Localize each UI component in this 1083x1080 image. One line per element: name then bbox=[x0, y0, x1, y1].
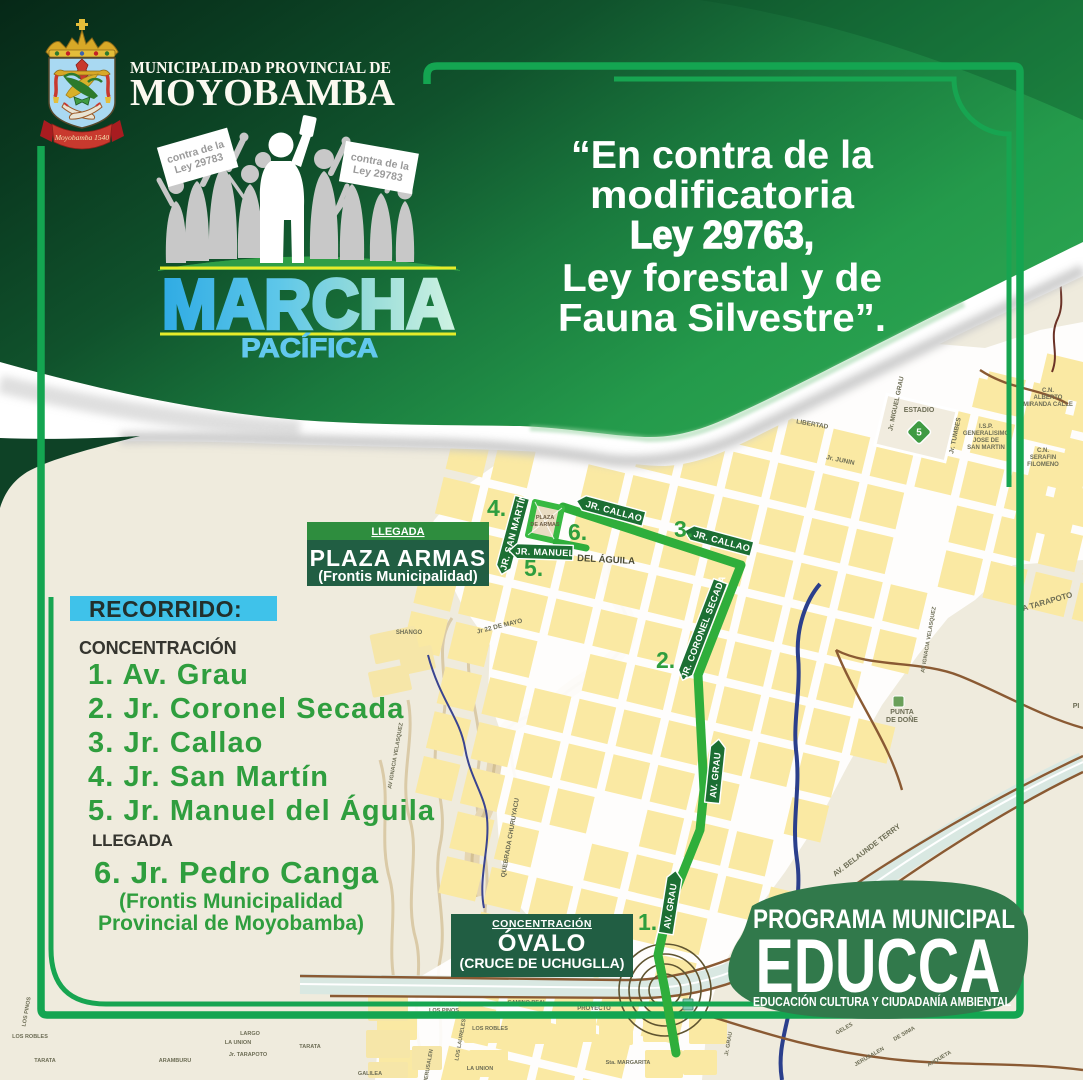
svg-text:SERAFIN: SERAFIN bbox=[1030, 455, 1056, 461]
svg-text:MIRANDA CALLE: MIRANDA CALLE bbox=[1023, 402, 1073, 408]
svg-text:LA UNION: LA UNION bbox=[225, 1040, 251, 1046]
svg-text:3. Jr. Callao: 3. Jr. Callao bbox=[88, 727, 264, 759]
svg-text:GENERALISIMO: GENERALISIMO bbox=[963, 431, 1010, 437]
svg-text:GALILEA: GALILEA bbox=[358, 1071, 382, 1077]
svg-text:4. Jr. San Martín: 4. Jr. San Martín bbox=[88, 761, 329, 793]
svg-text:Provincial de Moyobamba): Provincial de Moyobamba) bbox=[98, 912, 364, 935]
svg-text:DE DOÑE: DE DOÑE bbox=[886, 715, 918, 724]
svg-text:PLAZA: PLAZA bbox=[536, 515, 554, 521]
svg-text:TARATA: TARATA bbox=[299, 1044, 320, 1050]
svg-text:5. Jr. Manuel del Águila: 5. Jr. Manuel del Águila bbox=[88, 793, 435, 827]
svg-text:LLEGADA: LLEGADA bbox=[371, 526, 424, 538]
svg-text:ALBERTO: ALBERTO bbox=[1034, 395, 1063, 401]
svg-text:I.S.P.: I.S.P. bbox=[979, 424, 993, 430]
svg-text:ÓVALO: ÓVALO bbox=[498, 929, 587, 957]
svg-text:FILOMENO: FILOMENO bbox=[1027, 462, 1059, 468]
svg-text:LA UNION: LA UNION bbox=[467, 1066, 493, 1072]
svg-text:2.: 2. bbox=[656, 647, 675, 673]
svg-text:5: 5 bbox=[916, 428, 922, 439]
svg-text:(CRUCE DE UCHUGLLA): (CRUCE DE UCHUGLLA) bbox=[460, 955, 625, 971]
svg-text:SAN MARTIN: SAN MARTIN bbox=[967, 445, 1005, 451]
svg-text:MARCHA: MARCHA bbox=[162, 265, 454, 343]
svg-text:PROYECTO: PROYECTO bbox=[577, 1006, 611, 1012]
svg-text:DE ARMAS: DE ARMAS bbox=[530, 522, 559, 528]
svg-text:1.: 1. bbox=[638, 909, 657, 935]
svg-text:SHANGO: SHANGO bbox=[396, 630, 423, 636]
svg-text:PUNTA: PUNTA bbox=[890, 709, 914, 716]
svg-text:1. Av. Grau: 1. Av. Grau bbox=[88, 659, 249, 691]
svg-text:(Frontis Municipalidad: (Frontis Municipalidad bbox=[119, 890, 343, 913]
svg-text:“En contra de la: “En contra de la bbox=[571, 134, 873, 177]
svg-text:Jr. TARAPOTO: Jr. TARAPOTO bbox=[229, 1052, 268, 1058]
svg-text:CONCENTRACIÓN: CONCENTRACIÓN bbox=[492, 917, 592, 930]
svg-text:Ley 29763,: Ley 29763, bbox=[630, 214, 814, 257]
svg-text:5.: 5. bbox=[524, 555, 543, 581]
svg-text:C.N.: C.N. bbox=[1037, 448, 1049, 454]
svg-text:LOS ROBLES: LOS ROBLES bbox=[12, 1034, 48, 1040]
svg-text:3.: 3. bbox=[674, 516, 693, 542]
svg-text:ESTADIO: ESTADIO bbox=[904, 407, 935, 414]
svg-text:TARATA: TARATA bbox=[34, 1058, 55, 1064]
svg-text:PACÍFICA: PACÍFICA bbox=[241, 332, 378, 363]
svg-text:6.: 6. bbox=[568, 519, 587, 545]
svg-text:(Frontis Municipalidad): (Frontis Municipalidad) bbox=[318, 569, 478, 585]
svg-text:RECORRIDO:: RECORRIDO: bbox=[89, 596, 242, 622]
svg-text:EDUCACIÓN CULTURA Y CIUDADANÍA: EDUCACIÓN CULTURA Y CIUDADANÍA AMBIENTAL bbox=[753, 994, 1011, 1009]
svg-text:4.: 4. bbox=[487, 495, 506, 521]
svg-text:CONCENTRACIÓN: CONCENTRACIÓN bbox=[79, 637, 236, 658]
svg-text:Moyobamba 1540: Moyobamba 1540 bbox=[54, 133, 110, 142]
svg-text:PI: PI bbox=[1073, 703, 1080, 710]
svg-text:JOSE DE: JOSE DE bbox=[973, 438, 999, 444]
svg-text:Fauna Silvestre”.: Fauna Silvestre”. bbox=[558, 297, 886, 340]
svg-text:modificatoria: modificatoria bbox=[590, 174, 854, 217]
svg-text:Ley forestal y de: Ley forestal y de bbox=[562, 257, 882, 300]
svg-text:PLAZA ARMAS: PLAZA ARMAS bbox=[310, 545, 487, 571]
svg-text:2. Jr. Coronel Secada: 2. Jr. Coronel Secada bbox=[88, 693, 404, 725]
svg-text:LLEGADA: LLEGADA bbox=[92, 831, 173, 850]
svg-text:C.N.: C.N. bbox=[1042, 388, 1054, 394]
svg-text:LARGO: LARGO bbox=[240, 1031, 261, 1037]
svg-text:MOYOBAMBA: MOYOBAMBA bbox=[130, 72, 396, 114]
svg-text:ARAMBURU: ARAMBURU bbox=[159, 1058, 191, 1064]
svg-text:Sta. MARGARITA: Sta. MARGARITA bbox=[606, 1060, 651, 1066]
svg-text:LOS ROBLES: LOS ROBLES bbox=[472, 1026, 508, 1032]
svg-text:6. Jr. Pedro Canga: 6. Jr. Pedro Canga bbox=[94, 855, 379, 890]
